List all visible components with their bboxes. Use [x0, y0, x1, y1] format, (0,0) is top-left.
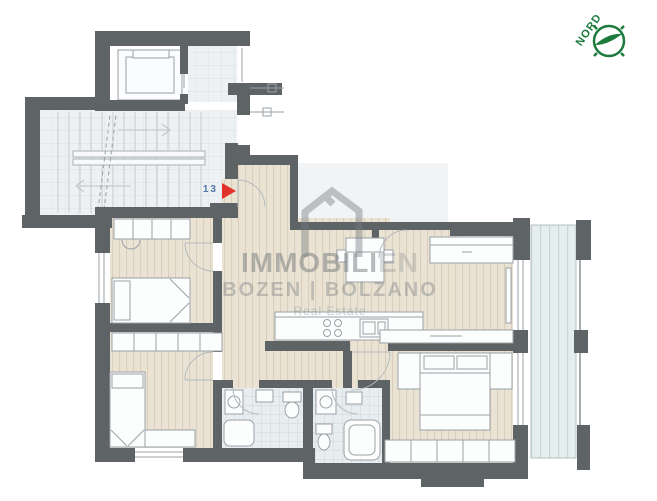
floorplan-drawing — [0, 0, 657, 501]
elevator — [118, 50, 184, 100]
floorplan-page: 13 NORD IMMOBILIEN BOZEN | BOLZANO Real … — [0, 0, 657, 501]
compass-icon — [594, 26, 624, 56]
adjacent-unit-shadow — [298, 163, 448, 222]
balcony — [531, 220, 591, 470]
